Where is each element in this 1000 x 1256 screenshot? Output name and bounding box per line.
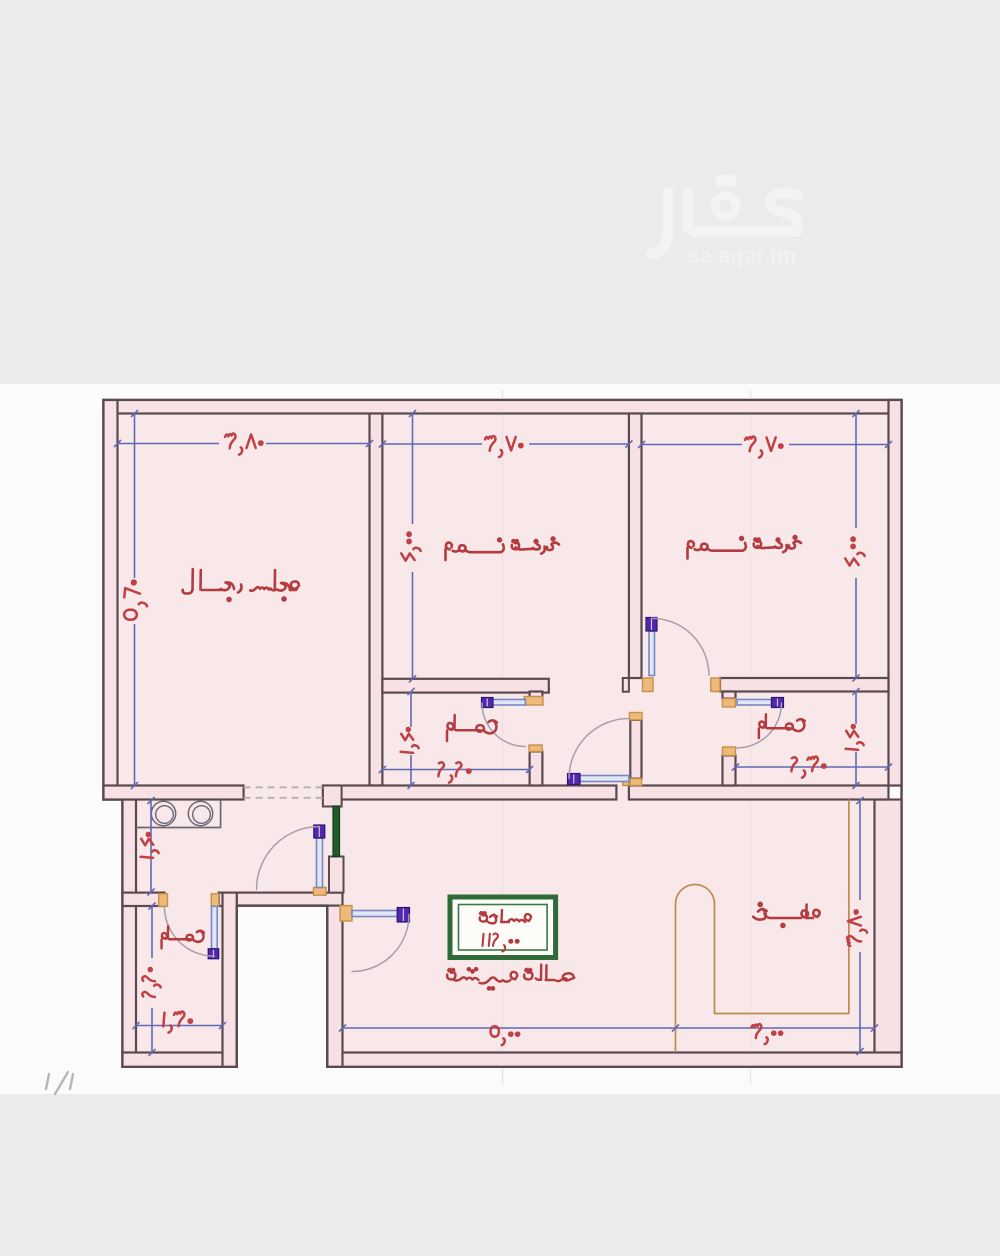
svg-text:sa.aqar.fm: sa.aqar.fm — [688, 243, 797, 268]
